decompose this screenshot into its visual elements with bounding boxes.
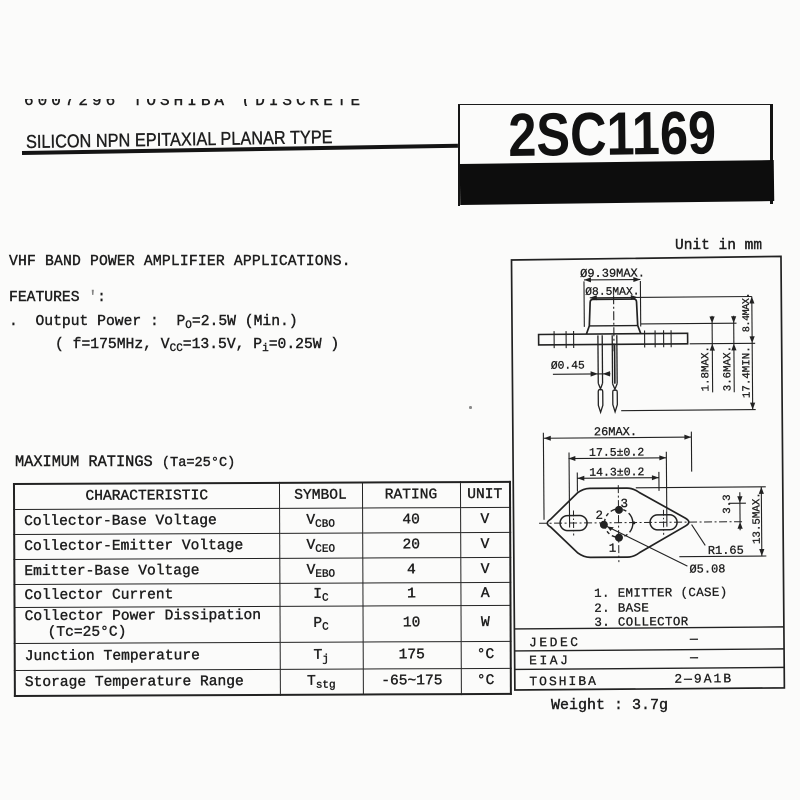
svg-text:3.6MAX.: 3.6MAX. [722, 346, 734, 391]
svg-text:EIAJ: EIAJ [529, 653, 570, 668]
svg-text:JEDEC: JEDEC [529, 635, 581, 650]
svg-text:Ø0.45: Ø0.45 [551, 360, 585, 372]
svg-text:3.3: 3.3 [722, 494, 734, 514]
svg-text:—: — [689, 650, 698, 665]
svg-text:2—9A1B: 2—9A1B [674, 671, 733, 686]
svg-text:2. BASE: 2. BASE [594, 601, 649, 615]
svg-text:8.4MAX.: 8.4MAX. [742, 293, 753, 332]
svg-text:17.4MIN.: 17.4MIN. [741, 346, 753, 398]
svg-text:—: — [689, 632, 698, 647]
svg-text:1.8MAX.: 1.8MAX. [700, 346, 712, 391]
svg-text:2: 2 [595, 509, 603, 523]
svg-text:3: 3 [620, 497, 628, 511]
svg-text:1: 1 [609, 542, 617, 556]
svg-text:1. EMITTER (CASE): 1. EMITTER (CASE) [594, 586, 728, 601]
svg-text:13.5MAX.: 13.5MAX. [751, 492, 763, 544]
svg-text:Ø5.08: Ø5.08 [689, 562, 725, 576]
svg-text:TOSHIBA: TOSHIBA [529, 674, 598, 690]
